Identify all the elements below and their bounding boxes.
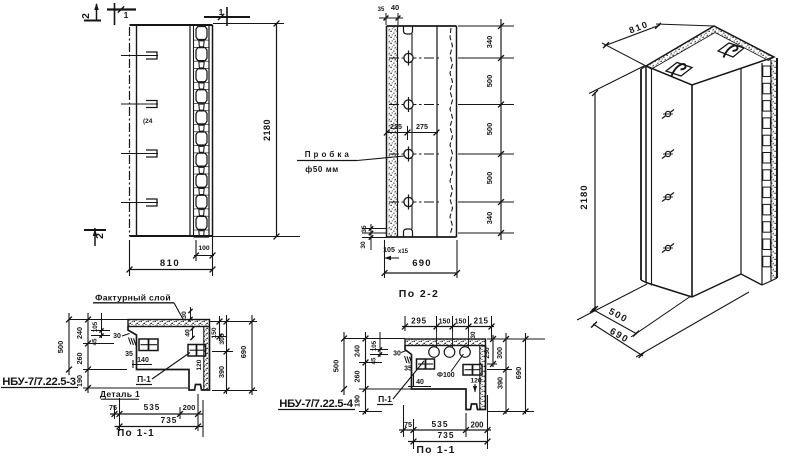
svg-text:340: 340 xyxy=(485,36,494,49)
svg-text:200: 200 xyxy=(183,403,196,412)
svg-text:260: 260 xyxy=(353,371,362,383)
svg-text:105: 105 xyxy=(92,321,99,332)
svg-text:30: 30 xyxy=(393,351,401,358)
svg-text:690: 690 xyxy=(412,258,431,269)
svg-text:НБУ-7/7.22.5-3: НБУ-7/7.22.5-3 xyxy=(2,376,75,388)
svg-text:100: 100 xyxy=(198,245,210,252)
svg-text:500: 500 xyxy=(485,172,494,185)
svg-text:390: 390 xyxy=(496,377,505,389)
svg-text:150: 150 xyxy=(439,319,451,326)
svg-text:35: 35 xyxy=(404,366,412,373)
svg-text:500: 500 xyxy=(485,123,494,136)
svg-text:535: 535 xyxy=(144,403,161,412)
svg-text:2: 2 xyxy=(80,13,92,19)
svg-text:2180: 2180 xyxy=(262,119,272,141)
svg-text:215: 215 xyxy=(474,317,489,326)
svg-text:П-1: П-1 xyxy=(137,374,151,384)
svg-text:По 2-2: По 2-2 xyxy=(399,288,439,300)
svg-text:ф50 мм: ф50 мм xyxy=(305,165,339,174)
svg-text:500: 500 xyxy=(485,75,494,88)
svg-text:Деталь 1: Деталь 1 xyxy=(100,389,140,399)
svg-text:690: 690 xyxy=(514,367,523,380)
svg-text:40: 40 xyxy=(416,379,424,386)
svg-text:30: 30 xyxy=(470,331,477,338)
svg-text:75: 75 xyxy=(109,403,117,412)
svg-text:390: 390 xyxy=(217,366,226,378)
svg-text:735: 735 xyxy=(438,430,455,440)
svg-text:Фактурный слой: Фактурный слой xyxy=(95,293,171,303)
svg-text:140: 140 xyxy=(137,357,149,364)
svg-text:2: 2 xyxy=(94,233,106,239)
svg-text:НБУ-7/7.22.5-4: НБУ-7/7.22.5-4 xyxy=(279,398,353,410)
svg-text:240: 240 xyxy=(75,327,84,339)
svg-text:35: 35 xyxy=(361,225,368,233)
svg-text:По 1-1: По 1-1 xyxy=(117,428,155,439)
svg-text:200: 200 xyxy=(470,421,484,430)
svg-text:240: 240 xyxy=(353,345,362,357)
svg-text:190: 190 xyxy=(353,395,362,407)
svg-text:250: 250 xyxy=(484,347,491,359)
svg-text:По 1-1: По 1-1 xyxy=(416,444,455,456)
svg-text:340: 340 xyxy=(485,212,494,225)
svg-text:2180: 2180 xyxy=(579,184,590,209)
svg-text:(24: (24 xyxy=(143,118,153,125)
svg-text:30: 30 xyxy=(360,241,367,249)
svg-text:500: 500 xyxy=(56,341,65,354)
svg-text:500: 500 xyxy=(332,360,341,373)
svg-text:150: 150 xyxy=(211,327,218,338)
svg-text:810: 810 xyxy=(160,258,180,269)
svg-text:75: 75 xyxy=(404,420,412,429)
svg-text:300: 300 xyxy=(219,333,226,345)
svg-text:П-1: П-1 xyxy=(378,394,392,404)
svg-text:690: 690 xyxy=(239,346,248,359)
svg-text:Ф100: Ф100 xyxy=(437,372,455,379)
svg-text:535: 535 xyxy=(432,419,449,429)
svg-text:1: 1 xyxy=(219,7,224,17)
svg-text:105: 105 xyxy=(371,340,378,351)
svg-text:1: 1 xyxy=(124,10,129,20)
svg-text:П р о б к а: П р о б к а xyxy=(305,150,350,159)
svg-text:300: 300 xyxy=(495,347,504,359)
svg-text:х15: х15 xyxy=(398,249,409,255)
svg-text:735: 735 xyxy=(161,416,178,425)
svg-text:40: 40 xyxy=(391,3,399,12)
svg-text:260: 260 xyxy=(75,353,84,365)
svg-text:150: 150 xyxy=(455,319,467,326)
svg-text:120: 120 xyxy=(196,359,203,370)
svg-text:190: 190 xyxy=(75,375,84,387)
svg-text:30: 30 xyxy=(113,333,121,340)
svg-text:35: 35 xyxy=(125,351,133,358)
svg-text:275: 275 xyxy=(416,122,428,131)
svg-text:45: 45 xyxy=(371,357,378,364)
svg-text:225: 225 xyxy=(390,122,402,131)
svg-text:295: 295 xyxy=(411,317,427,326)
svg-text:35: 35 xyxy=(378,7,385,13)
svg-text:45: 45 xyxy=(92,338,99,345)
svg-text:120: 120 xyxy=(470,378,482,385)
